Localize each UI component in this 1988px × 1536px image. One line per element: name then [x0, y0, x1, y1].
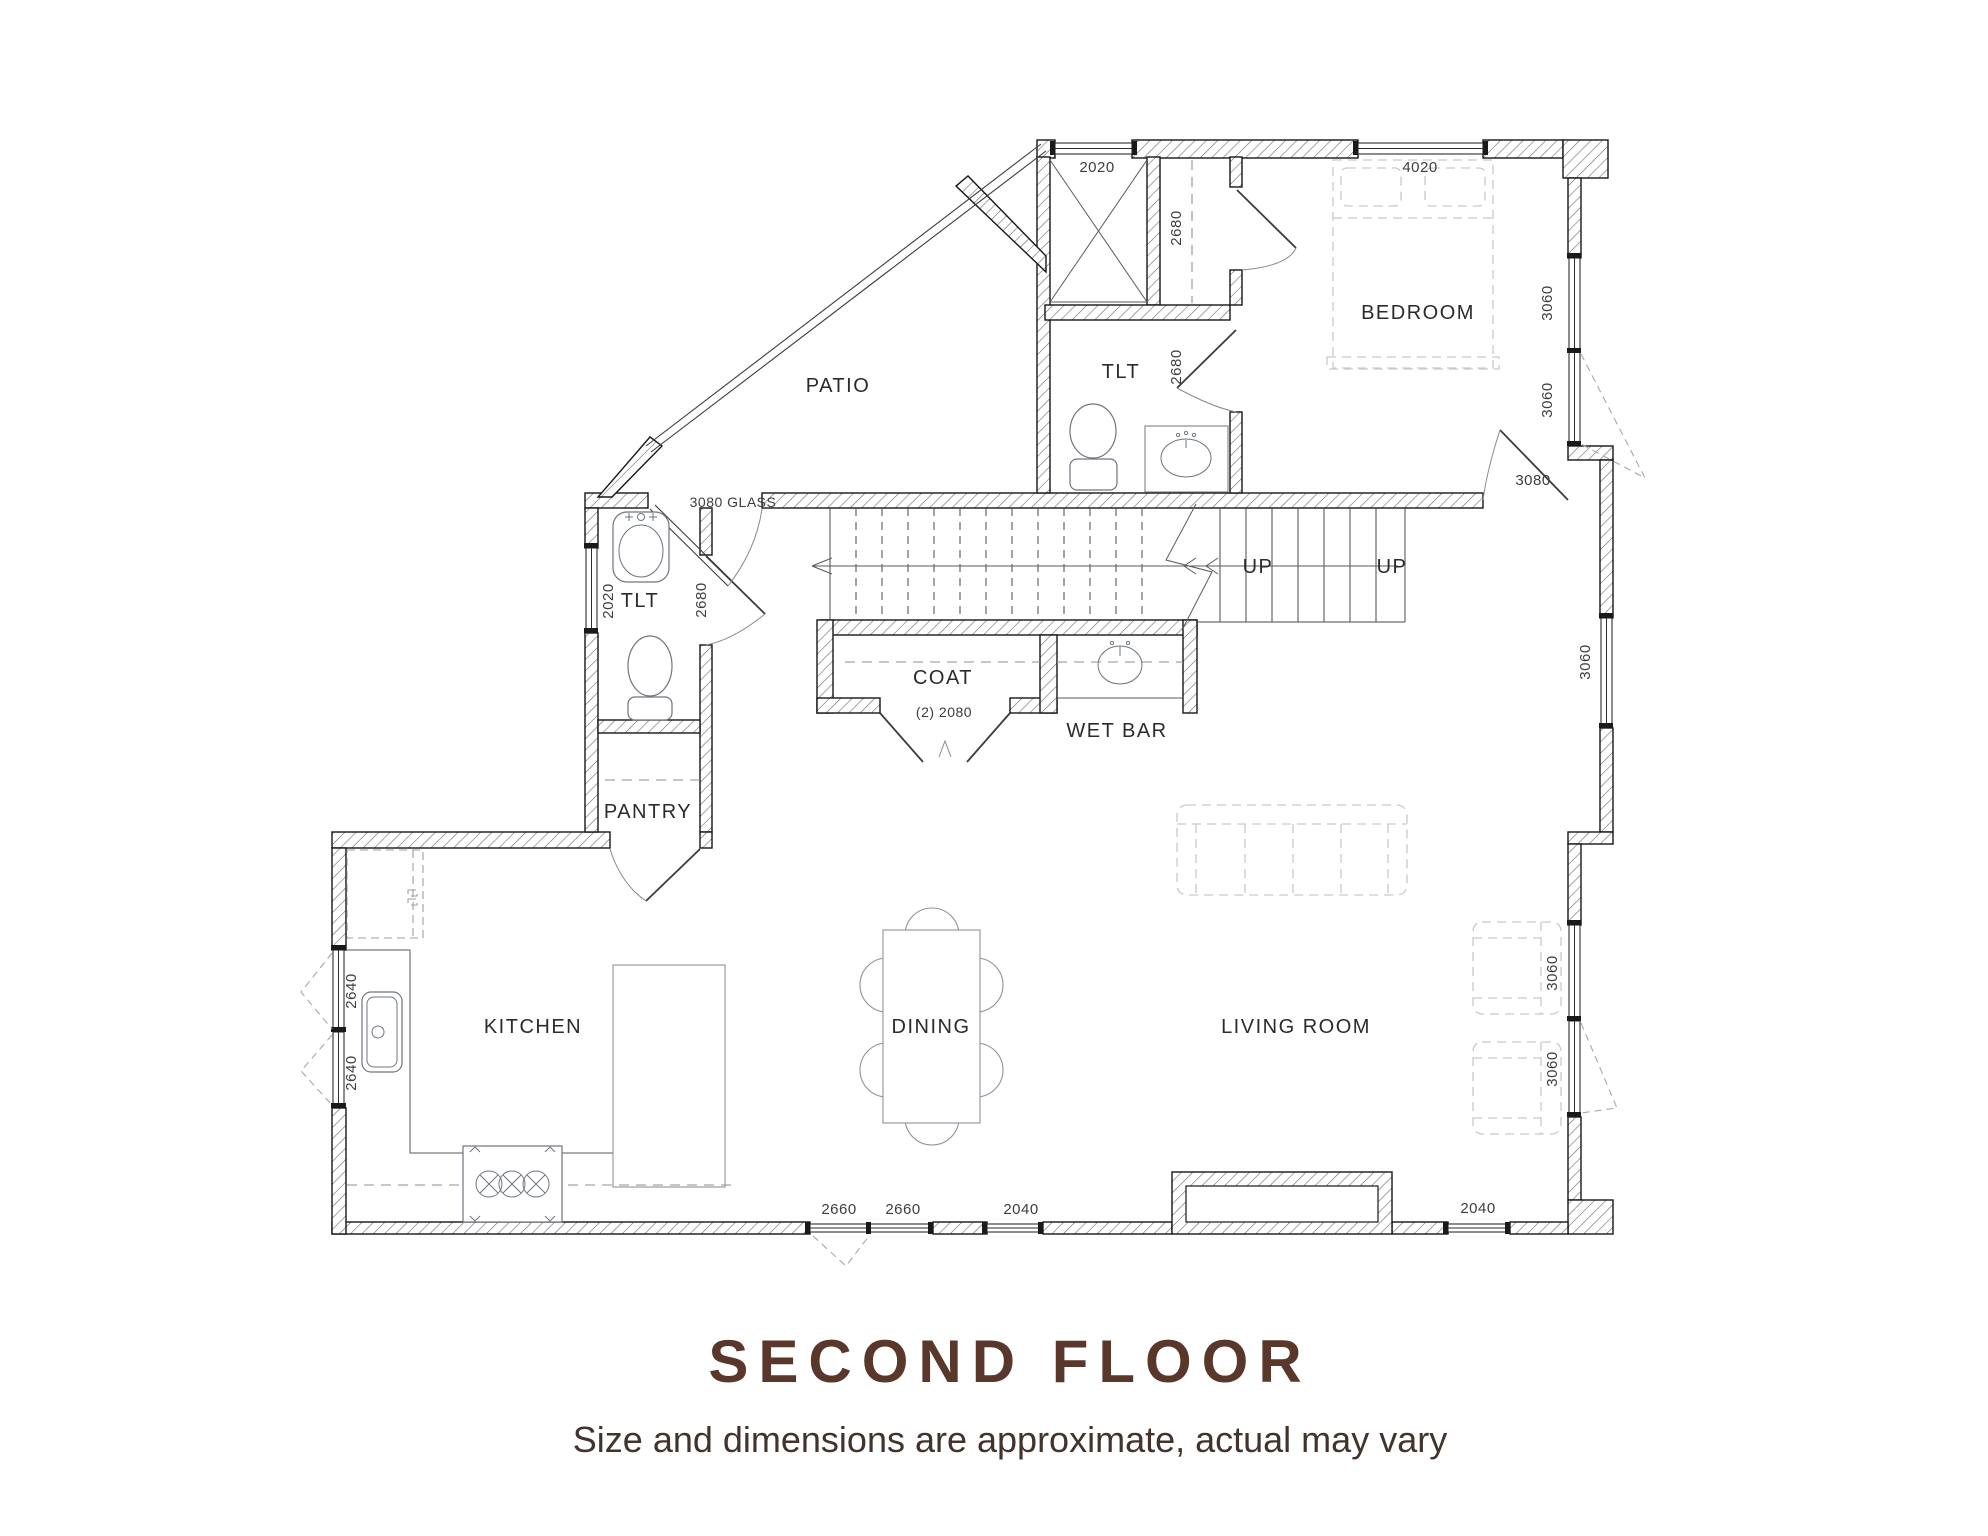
floor-plan-page: PATIO TLT BEDROOM TLT COAT WET BAR PANTR…	[0, 0, 1988, 1536]
title-block: SECOND FLOOR Size and dimensions are app…	[573, 1328, 1447, 1460]
room-label-living-room: LIVING ROOM	[1221, 1016, 1371, 1038]
dim-dining-window-south: 2660	[885, 1201, 920, 1218]
dim-kitchen-window-lower: 2640	[343, 1055, 360, 1090]
sofa-icon	[1177, 805, 1407, 895]
stairs-up-label-left: UP	[1243, 556, 1274, 578]
dim-bedroom-right-window-lower: 3060	[1539, 382, 1556, 417]
sink-icon	[613, 512, 669, 582]
stairs	[812, 504, 1405, 630]
toilet-icon	[1070, 404, 1116, 458]
fireplace	[1172, 1172, 1392, 1234]
wetbar-fixtures	[1098, 641, 1142, 684]
page-title: SECOND FLOOR	[708, 1328, 1311, 1395]
dim-bedroom-door: 3080	[1515, 472, 1550, 489]
page-subtitle: Size and dimensions are approximate, act…	[573, 1419, 1447, 1460]
dim-left-toilet-window: 2020	[600, 583, 617, 618]
kitchen-sink-icon	[362, 992, 402, 1072]
room-label-patio: PATIO	[806, 375, 871, 397]
dim-living-window-south-right: 2040	[1460, 1200, 1495, 1217]
patio-door-swing	[813, 1236, 869, 1266]
dim-living-window-south-left: 2040	[1003, 1201, 1038, 1218]
room-label-coat: COAT	[913, 667, 973, 689]
refrigerator-icon	[347, 850, 423, 938]
bed-icon	[1327, 160, 1499, 369]
toilet-icon	[628, 636, 672, 696]
room-label-pantry: PANTRY	[604, 801, 692, 823]
dim-coat-doors: (2) 2080	[916, 704, 972, 720]
stairs-up-label-right: UP	[1377, 556, 1408, 578]
dim-living-right-window-bottom: 3060	[1544, 1051, 1561, 1086]
room-label-kitchen: KITCHEN	[484, 1016, 582, 1038]
dim-kitchen-window-upper: 2640	[343, 973, 360, 1008]
dim-living-right-window-mid: 3060	[1544, 955, 1561, 990]
upper-toilet-fixtures	[1070, 404, 1228, 492]
vanity-counter	[1145, 426, 1228, 492]
bedroom-door-leaf	[1500, 430, 1568, 500]
floor-plan-canvas: PATIO TLT BEDROOM TLT COAT WET BAR PANTR…	[0, 0, 1988, 1536]
room-label-toilet-left: TLT	[621, 590, 660, 612]
dim-patio-door-south: 2660	[821, 1201, 856, 1218]
range-icon	[463, 1146, 562, 1222]
dim-living-right-window-upper: 3060	[1577, 644, 1594, 679]
dim-patio-glass-door: 3080 GLASS	[690, 494, 777, 510]
dim-bedroom-right-window-upper: 3060	[1539, 285, 1556, 320]
dim-upper-toilet-door: 2680	[1168, 349, 1185, 384]
kitchen-window-swing-upper	[301, 953, 332, 1029]
dim-closet-door: 2680	[1168, 210, 1185, 245]
patio-railing	[646, 144, 1046, 452]
kitchen-window-swing-lower	[301, 1035, 332, 1105]
room-label-toilet-upper: TLT	[1102, 361, 1141, 383]
room-label-bedroom: BEDROOM	[1361, 302, 1475, 324]
left-toilet-fixtures	[613, 512, 672, 720]
living-window-swing	[1581, 1023, 1617, 1113]
dim-bedroom-window: 4020	[1402, 159, 1437, 176]
room-label-wet-bar: WET BAR	[1066, 720, 1167, 742]
dim-closet-window: 2020	[1079, 159, 1114, 176]
room-label-dining: DINING	[892, 1016, 971, 1038]
kitchen-island	[613, 965, 725, 1187]
dim-left-toilet-door: 2680	[693, 582, 710, 617]
